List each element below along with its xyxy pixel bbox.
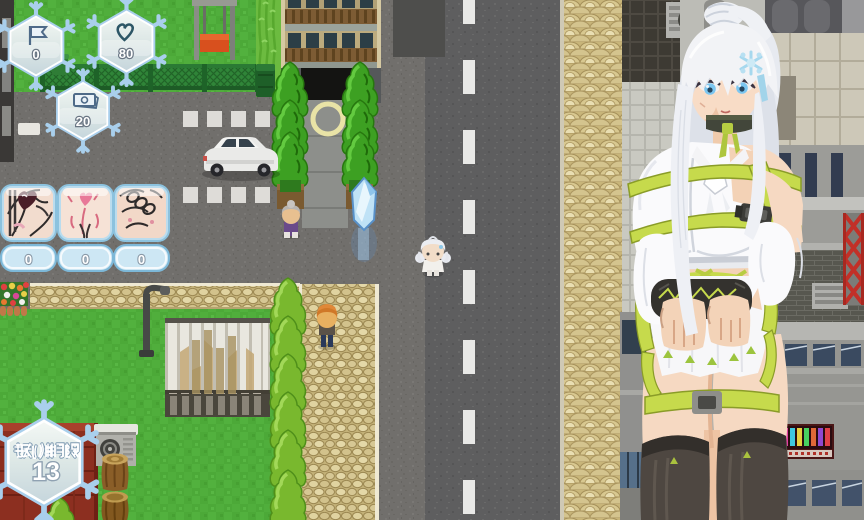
svg-text:80: 80 [119, 46, 133, 61]
svg-text:0: 0 [32, 47, 39, 62]
svg-text:0: 0 [138, 252, 145, 267]
svg-text:0: 0 [25, 252, 32, 267]
svg-text:13: 13 [32, 458, 60, 486]
svg-text:0: 0 [82, 252, 89, 267]
svg-text:20: 20 [76, 114, 90, 129]
